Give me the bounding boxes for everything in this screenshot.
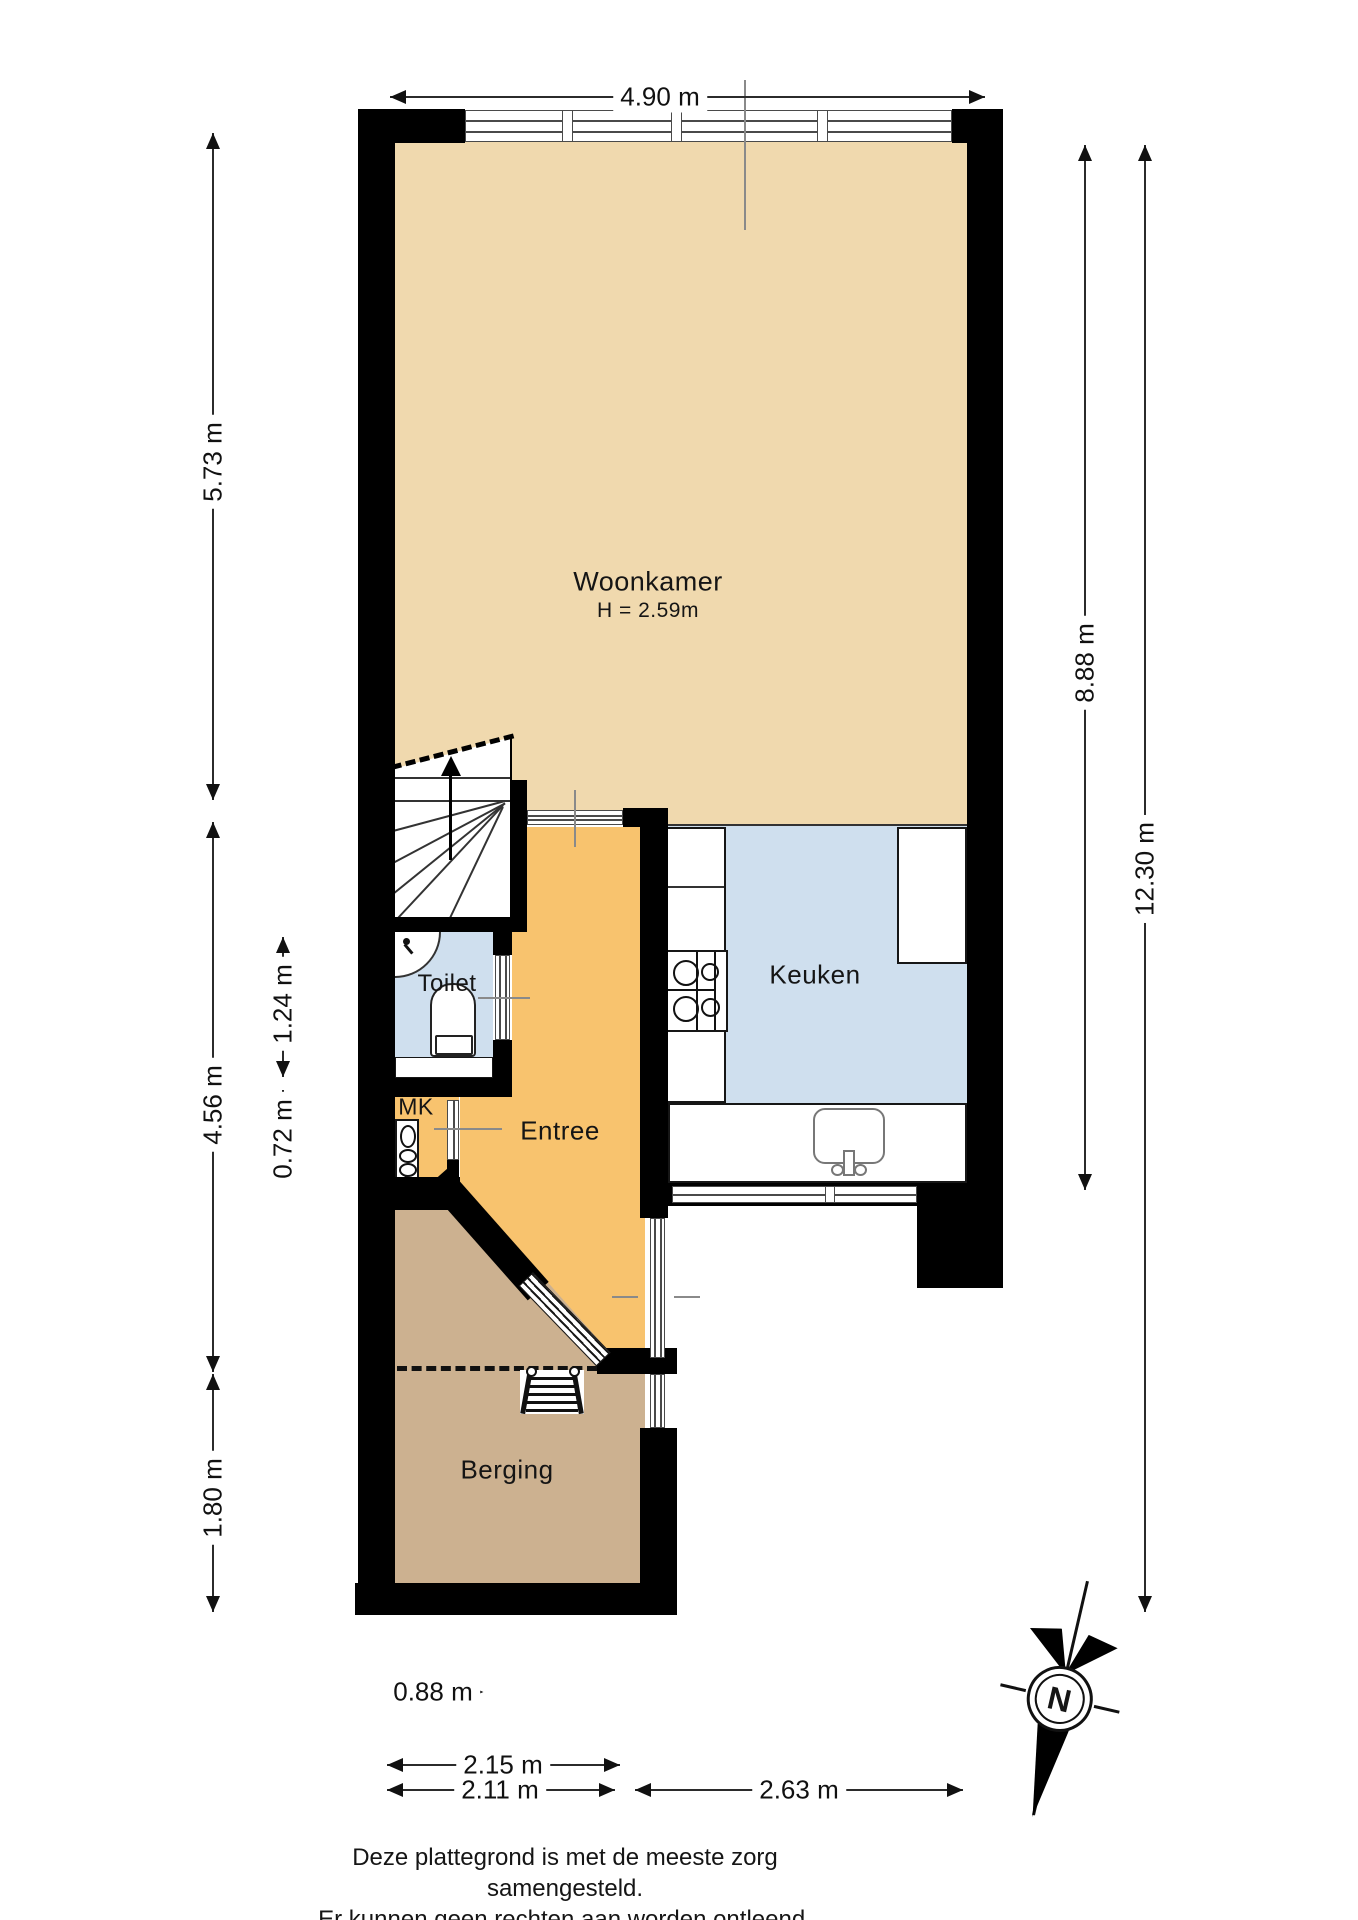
dimension-label-front-door-width: 0.88 m	[386, 1677, 480, 1708]
woonkamer-floor	[395, 133, 967, 825]
dimension-arrow	[947, 1783, 963, 1797]
room-label-berging: Berging	[460, 1455, 553, 1486]
dimension-arrow	[599, 1783, 615, 1797]
room-label-meterkast: MK	[398, 1094, 434, 1121]
axis-tick	[434, 1128, 502, 1130]
dimension-label-meterkast-depth: 0.72 m	[268, 1092, 299, 1186]
stair-edge	[510, 737, 512, 782]
dimension-arrow	[206, 1596, 220, 1612]
meter-cabinet-icon	[395, 1119, 419, 1181]
dimension-label-total-depth: 12.30 m	[1130, 815, 1161, 923]
dimension-label-inner-depth: 8.88 m	[1070, 616, 1101, 710]
footer-disclaimer: Deze plattegrond is met de meeste zorg s…	[277, 1842, 853, 1920]
wall	[967, 143, 1003, 1206]
stair-arrow-head	[441, 756, 461, 776]
dimension-arrow	[276, 937, 290, 953]
compass-icon: N	[968, 1566, 1153, 1830]
kitchen-boundary-line	[668, 824, 967, 826]
dimension-label-living-depth: 5.73 m	[198, 415, 229, 509]
axis-tick	[478, 997, 530, 999]
room-label-toilet: Toilet	[417, 970, 476, 998]
toilet-shelf	[395, 1057, 493, 1078]
loft-ladder-icon	[520, 1370, 584, 1414]
door-symbol	[447, 1100, 459, 1160]
window-symbol	[650, 1374, 665, 1428]
dimension-arrow	[969, 90, 985, 104]
room-label-keuken: Keuken	[769, 960, 860, 991]
stair-direction-arrow	[449, 770, 452, 860]
wall	[358, 1078, 512, 1097]
dimension-arrow	[276, 1061, 290, 1077]
room-label-entree: Entree	[520, 1116, 600, 1147]
dimension-arrow	[206, 822, 220, 838]
dimension-label-toilet-depth: 1.24 m	[268, 957, 299, 1051]
wall	[493, 932, 512, 955]
axis-tick	[612, 1296, 638, 1298]
kitchen-sink-icon	[813, 1108, 885, 1164]
wall	[510, 780, 527, 932]
stove-icon	[666, 950, 728, 1032]
window-symbol	[672, 1186, 917, 1203]
dimension-arrow	[206, 784, 220, 800]
axis-tick	[744, 80, 746, 230]
room-height-note: H = 2.59m	[597, 599, 699, 623]
dimension-arrow	[390, 90, 406, 104]
dimension-label-berging-inner-width: 2.11 m	[454, 1775, 546, 1806]
wall	[395, 917, 527, 932]
dimension-arrow	[1078, 1174, 1092, 1190]
footer-disclaimer-line2: Er kunnen geen rechten aan worden ontlee…	[277, 1904, 853, 1920]
wall	[358, 109, 395, 1615]
wall	[917, 1183, 1003, 1288]
dimension-arrow	[387, 1758, 403, 1772]
dimension-label-berging-depth: 1.80 m	[198, 1451, 229, 1545]
dimension-arrow	[1078, 145, 1092, 161]
window-symbol	[650, 1218, 665, 1358]
axis-tick	[674, 1296, 700, 1298]
footer-disclaimer-line1: Deze plattegrond is met de meeste zorg s…	[277, 1842, 853, 1904]
compass-south-needle	[1016, 1723, 1070, 1820]
dimension-label-hall-depth: 4.56 m	[198, 1058, 229, 1152]
dimension-arrow	[635, 1783, 651, 1797]
dimension-arrow	[1138, 145, 1152, 161]
dimension-label-top-width: 4.90 m	[613, 82, 707, 113]
dimension-arrow	[604, 1758, 620, 1772]
dimension-arrow	[206, 133, 220, 149]
window-symbol	[465, 110, 952, 142]
dimension-arrow	[387, 1783, 403, 1797]
room-label-woonkamer: Woonkamer	[573, 567, 723, 598]
dimension-label-keuken-width: 2.63 m	[752, 1775, 846, 1806]
compass-tick	[1000, 1683, 1026, 1692]
kitchen-cabinet	[897, 827, 967, 964]
counter-divider	[668, 886, 724, 888]
axis-tick	[574, 790, 576, 847]
wall	[355, 1583, 677, 1615]
compass-tick	[1094, 1705, 1120, 1714]
wall	[640, 808, 668, 1183]
wall	[952, 109, 1003, 143]
floor-plan: Woonkamer H = 2.59m Keuken Toilet Entree…	[0, 0, 1358, 1920]
dimension-arrow	[206, 1356, 220, 1372]
dimension-arrow	[206, 1374, 220, 1390]
